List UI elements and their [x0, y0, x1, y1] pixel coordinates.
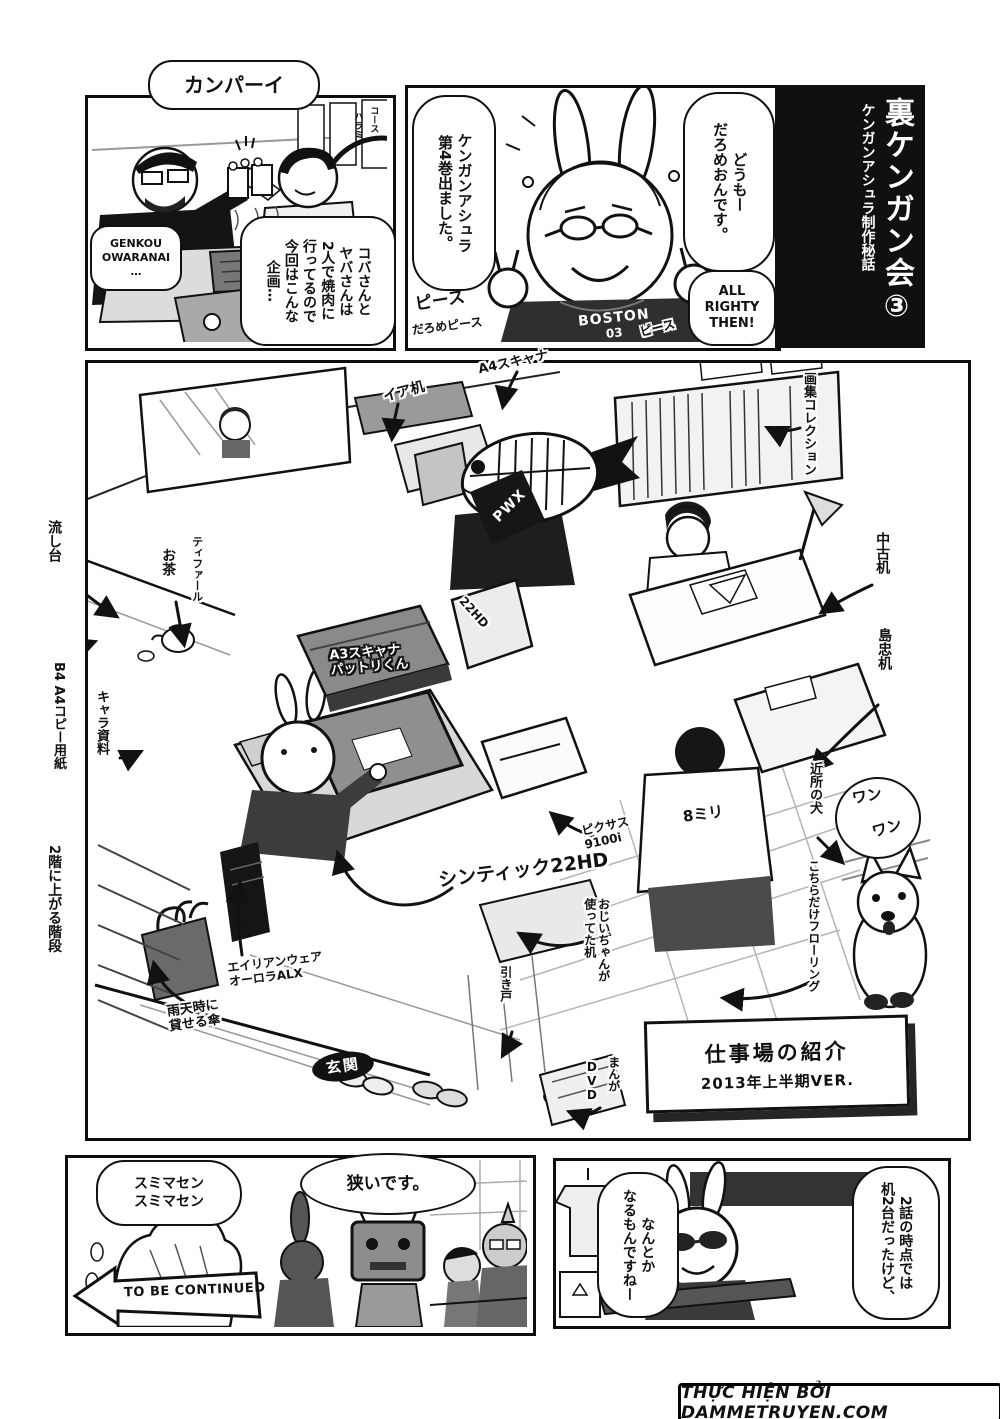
chapter-title: 裏ケンガン会③ [878, 97, 916, 336]
label-shimachu-desk: 島忠机 [876, 628, 892, 670]
chapter-subtitle: ケンガンアシュラ制作秘話 [857, 97, 878, 336]
workspace-sign: 仕事場の紹介 2013年上半期VER. [644, 1015, 910, 1114]
label-neighbor-dog: 近所の犬 [806, 762, 821, 814]
bubble-two-desks: 2話の時点では 机2台だったけど、 [852, 1166, 940, 1320]
label-used-desk: 中古机 [874, 532, 890, 574]
label-manga: まんが [606, 1056, 620, 1092]
label-stairs: 2階に上がる階段 [46, 845, 62, 953]
manga-page: 裏ケンガン会③ ケンガンアシュラ制作秘話 [0, 0, 1000, 1419]
bubble-yakiniku-plan: コバさんと ヤバさんは 2人で焼肉に 行ってるので 今回はこんな 企画… [240, 216, 396, 346]
bubble-narrow: 狭いです。 [300, 1153, 476, 1215]
chapter-title-block: 裏ケンガン会③ ケンガンアシュラ制作秘話 [775, 85, 925, 348]
label-dvd: DVD [584, 1060, 598, 1102]
bubble-kanpai: カンパーイ [148, 60, 320, 110]
bubble-greeting: どうもー だろめおんです。 [683, 92, 775, 272]
bubble-volume-4: ケンガンアシュラ 第4巻出ました。 [412, 95, 496, 291]
scanlation-credit: THỰC HIỆN BỞI DAMMETRUYEN.COM [678, 1383, 1000, 1419]
label-art-collection: 画集コレクション [800, 372, 815, 476]
poster-course: コース [368, 106, 378, 133]
label-copy-paper: B4 A4コピー用紙 [50, 662, 65, 770]
label-sliding-door: 引き戸 [498, 966, 512, 1002]
credit-text: THỰC HIỆN BỞI DAMMETRUYEN.COM [681, 1383, 999, 1419]
label-flooring: こちらだけフローリング [806, 860, 820, 992]
sign-title: 仕事場の紹介 [704, 1035, 849, 1069]
bubble-somehow-works: なんとか なるもんですねー [597, 1172, 679, 1318]
sign-version: 2013年上半期VER. [701, 1068, 855, 1093]
bubble-all-righty: ALL RIGHTY THEN! [688, 270, 776, 346]
label-character-reference: キャラ資料 [93, 690, 108, 755]
bubble-sumimasen: スミマセン スミマセン [96, 1160, 242, 1226]
label-grandpa-desk: おじいちゃんが 使ってた机 [582, 898, 610, 982]
shirt-03: 03 [605, 326, 623, 341]
bubble-genkou-owaranai: GENKOU OWARANAI … [90, 225, 182, 291]
label-tea: お茶 [160, 548, 176, 576]
label-tfal-kettle: ティファール [190, 536, 203, 602]
poster-harami: ハラミ [352, 112, 362, 139]
label-sink: 流し台 [46, 520, 62, 562]
